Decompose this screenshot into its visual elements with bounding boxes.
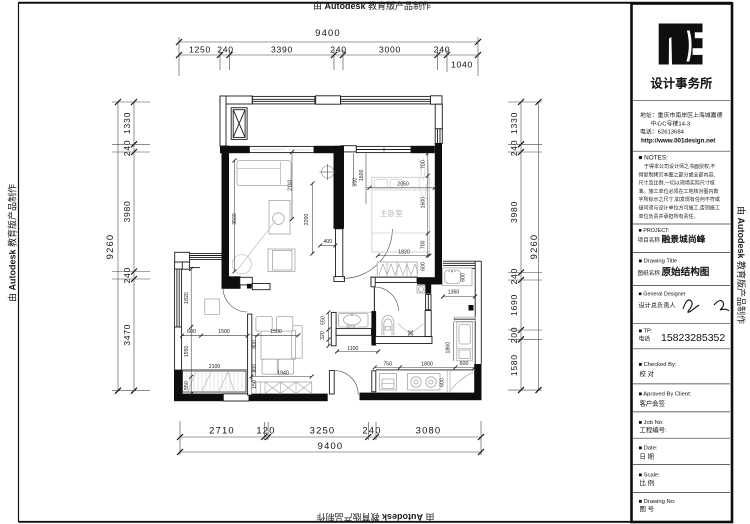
svg-text:于得本公司设计师之书面授权,不: 于得本公司设计师之书面授权,不 xyxy=(644,163,715,170)
svg-text:9400: 9400 xyxy=(318,440,344,451)
svg-text:地址：重庆市南岸区上海城嘉德: 地址：重庆市南岸区上海城嘉德 xyxy=(640,111,723,119)
svg-text:客户会签: 客户会签 xyxy=(640,399,666,408)
svg-text:200: 200 xyxy=(509,327,519,343)
svg-text:1500: 1500 xyxy=(218,329,230,335)
svg-text:600: 600 xyxy=(461,273,467,282)
svg-text:3390: 3390 xyxy=(271,45,293,55)
svg-text:1820: 1820 xyxy=(398,249,410,255)
svg-text:600: 600 xyxy=(421,262,427,271)
svg-text:设计总负责人: 设计总负责人 xyxy=(639,302,676,310)
svg-text:■ Drawing Title: ■ Drawing Title xyxy=(639,259,678,265)
svg-text:主卧室: 主卧室 xyxy=(380,208,403,218)
svg-text:9260: 9260 xyxy=(104,234,115,260)
svg-text:1100: 1100 xyxy=(347,346,358,352)
svg-text:1040: 1040 xyxy=(451,60,473,70)
svg-text:550: 550 xyxy=(321,316,327,325)
svg-text:1550: 1550 xyxy=(184,346,190,358)
svg-text:240: 240 xyxy=(330,45,346,55)
svg-text:240: 240 xyxy=(122,140,132,156)
svg-text:700: 700 xyxy=(420,240,426,249)
svg-text:1800: 1800 xyxy=(421,361,433,367)
svg-text:由 Autodesk 教育版产品制作: 由 Autodesk 教育版产品制作 xyxy=(736,206,747,324)
svg-text:240: 240 xyxy=(122,267,132,283)
svg-text:9260: 9260 xyxy=(528,234,539,260)
svg-text:由 Autodesk 教育版产品制作: 由 Autodesk 教育版产品制作 xyxy=(313,0,431,11)
svg-text:1860: 1860 xyxy=(445,342,451,354)
svg-text:校 对: 校 对 xyxy=(640,369,655,378)
svg-text:1820: 1820 xyxy=(184,292,190,304)
svg-text:550: 550 xyxy=(184,381,190,390)
svg-text:得复制拷贝本图之部分或全部内容,: 得复制拷贝本图之部分或全部内容, xyxy=(639,171,715,178)
svg-text:750: 750 xyxy=(383,361,392,367)
svg-text:2110: 2110 xyxy=(288,180,294,191)
svg-text:2100: 2100 xyxy=(209,364,221,370)
svg-text:准。施工单位必须在工地核对图内数: 准。施工单位必须在工地核对图内数 xyxy=(639,188,719,195)
svg-text:240: 240 xyxy=(434,45,450,55)
svg-text:1580: 1580 xyxy=(509,354,519,376)
svg-text:■ Date:: ■ Date: xyxy=(639,446,658,452)
svg-text:http://www.001design.net: http://www.001design.net xyxy=(641,138,715,145)
svg-text:图 号: 图 号 xyxy=(640,505,655,513)
svg-text:■ Drawing No:: ■ Drawing No: xyxy=(639,499,676,505)
svg-text:320: 320 xyxy=(320,331,326,340)
svg-text:■ General Designer: ■ General Designer xyxy=(639,292,686,298)
svg-text:1330: 1330 xyxy=(509,112,519,134)
svg-text:1940: 1940 xyxy=(277,370,289,376)
svg-text:2200: 2200 xyxy=(304,214,310,226)
svg-text:设计事务所: 设计事务所 xyxy=(651,76,713,91)
svg-text:800: 800 xyxy=(252,340,258,349)
svg-text:3000: 3000 xyxy=(379,45,401,55)
svg-text:单位负责并承担所有责任。: 单位负责并承担所有责任。 xyxy=(639,213,699,220)
svg-text:700: 700 xyxy=(420,160,426,169)
svg-text:240: 240 xyxy=(509,268,519,284)
svg-text:2050: 2050 xyxy=(397,182,409,188)
svg-text:3980: 3980 xyxy=(509,201,519,223)
svg-text:中心C号楼14-3: 中心C号楼14-3 xyxy=(651,120,691,128)
svg-text:电话：62613684: 电话：62613684 xyxy=(640,128,685,136)
svg-text:■ Apraved By Client:: ■ Apraved By Client: xyxy=(639,392,692,398)
svg-text:600: 600 xyxy=(187,329,196,335)
svg-text:日 期: 日 期 xyxy=(640,453,655,461)
svg-text:电话: 电话 xyxy=(639,335,651,343)
svg-text:尺寸及比例,一切以现场实际尺寸核: 尺寸及比例,一切以现场实际尺寸核 xyxy=(639,180,715,187)
svg-text:3080: 3080 xyxy=(416,425,442,436)
svg-text:600: 600 xyxy=(460,361,469,367)
svg-text:1690: 1690 xyxy=(509,294,519,316)
svg-text:3250: 3250 xyxy=(310,425,336,436)
svg-text:由 Autodesk 教育版产品制作: 由 Autodesk 教育版产品制作 xyxy=(316,512,434,523)
svg-text:■ Job No:: ■ Job No: xyxy=(639,420,664,426)
svg-text:字所标示之尺寸,如发现有任何不符或: 字所标示之尺寸,如发现有任何不符或 xyxy=(639,196,720,203)
svg-text:■ Scale:: ■ Scale: xyxy=(639,473,661,479)
svg-text:3500: 3500 xyxy=(232,213,238,225)
svg-text:2710: 2710 xyxy=(209,425,235,436)
svg-text:由 Autodesk 教育版产品制作: 由 Autodesk 教育版产品制作 xyxy=(7,184,18,302)
svg-text:1600: 1600 xyxy=(420,197,426,209)
svg-text:1500: 1500 xyxy=(270,329,282,335)
svg-text:400: 400 xyxy=(323,239,332,245)
svg-text:洗手台: 洗手台 xyxy=(346,324,356,329)
svg-text:1330: 1330 xyxy=(122,112,132,134)
svg-text:1250: 1250 xyxy=(189,45,211,55)
svg-text:3980: 3980 xyxy=(122,201,132,223)
svg-text:工程编号:: 工程编号: xyxy=(640,425,668,434)
svg-text:600: 600 xyxy=(440,378,446,387)
svg-text:■ NOTES:: ■ NOTES: xyxy=(639,155,669,162)
svg-text:950: 950 xyxy=(353,178,359,187)
svg-text:240: 240 xyxy=(509,140,519,156)
svg-text:240: 240 xyxy=(362,425,381,436)
svg-text:3470: 3470 xyxy=(122,324,132,346)
svg-text:■ TP:: ■ TP: xyxy=(639,329,653,335)
svg-text:比 例: 比 例 xyxy=(640,478,655,487)
svg-text:■ Checked By:: ■ Checked By: xyxy=(639,362,677,368)
svg-text:150: 150 xyxy=(252,380,258,389)
svg-text:9400: 9400 xyxy=(315,27,341,38)
svg-text:800: 800 xyxy=(252,364,258,373)
svg-text:15823285352: 15823285352 xyxy=(661,332,725,344)
svg-text:1600: 1600 xyxy=(359,170,365,182)
svg-text:1360: 1360 xyxy=(448,290,460,296)
svg-text:疑问须与设计单位方可施工,否则施工: 疑问须与设计单位方可施工,否则施工 xyxy=(639,205,720,212)
svg-text:120: 120 xyxy=(256,425,275,436)
